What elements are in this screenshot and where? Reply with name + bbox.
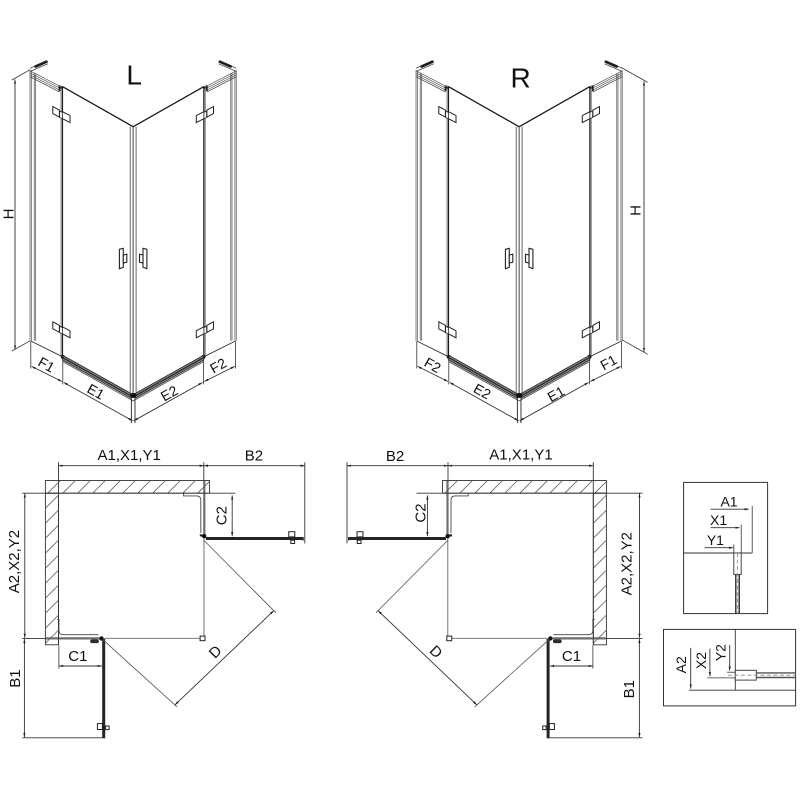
svg-text:A2,X2,Y2: A2,X2,Y2 — [619, 532, 636, 595]
svg-text:A1,X1,Y1: A1,X1,Y1 — [489, 447, 552, 464]
svg-text:B2: B2 — [386, 448, 404, 465]
svg-text:X2: X2 — [693, 652, 709, 669]
svg-text:Y2: Y2 — [712, 644, 728, 661]
svg-text:B2: B2 — [245, 447, 263, 464]
svg-text:C2: C2 — [214, 506, 231, 525]
svg-text:A2: A2 — [673, 656, 689, 673]
svg-text:A1,X1,Y1: A1,X1,Y1 — [98, 447, 161, 464]
svg-text:R: R — [510, 63, 530, 94]
svg-text:A2,X2,Y2: A2,X2,Y2 — [6, 530, 23, 593]
svg-text:C1: C1 — [68, 648, 87, 665]
svg-text:H: H — [1, 209, 18, 220]
svg-text:L: L — [126, 60, 142, 91]
svg-text:X1: X1 — [710, 512, 727, 528]
svg-text:A1: A1 — [720, 493, 737, 509]
svg-text:C2: C2 — [413, 503, 430, 522]
svg-text:B1: B1 — [7, 669, 24, 687]
svg-text:H: H — [628, 205, 645, 216]
svg-text:C1: C1 — [562, 648, 581, 665]
svg-text:B1: B1 — [621, 680, 638, 698]
svg-text:Y1: Y1 — [707, 532, 724, 548]
